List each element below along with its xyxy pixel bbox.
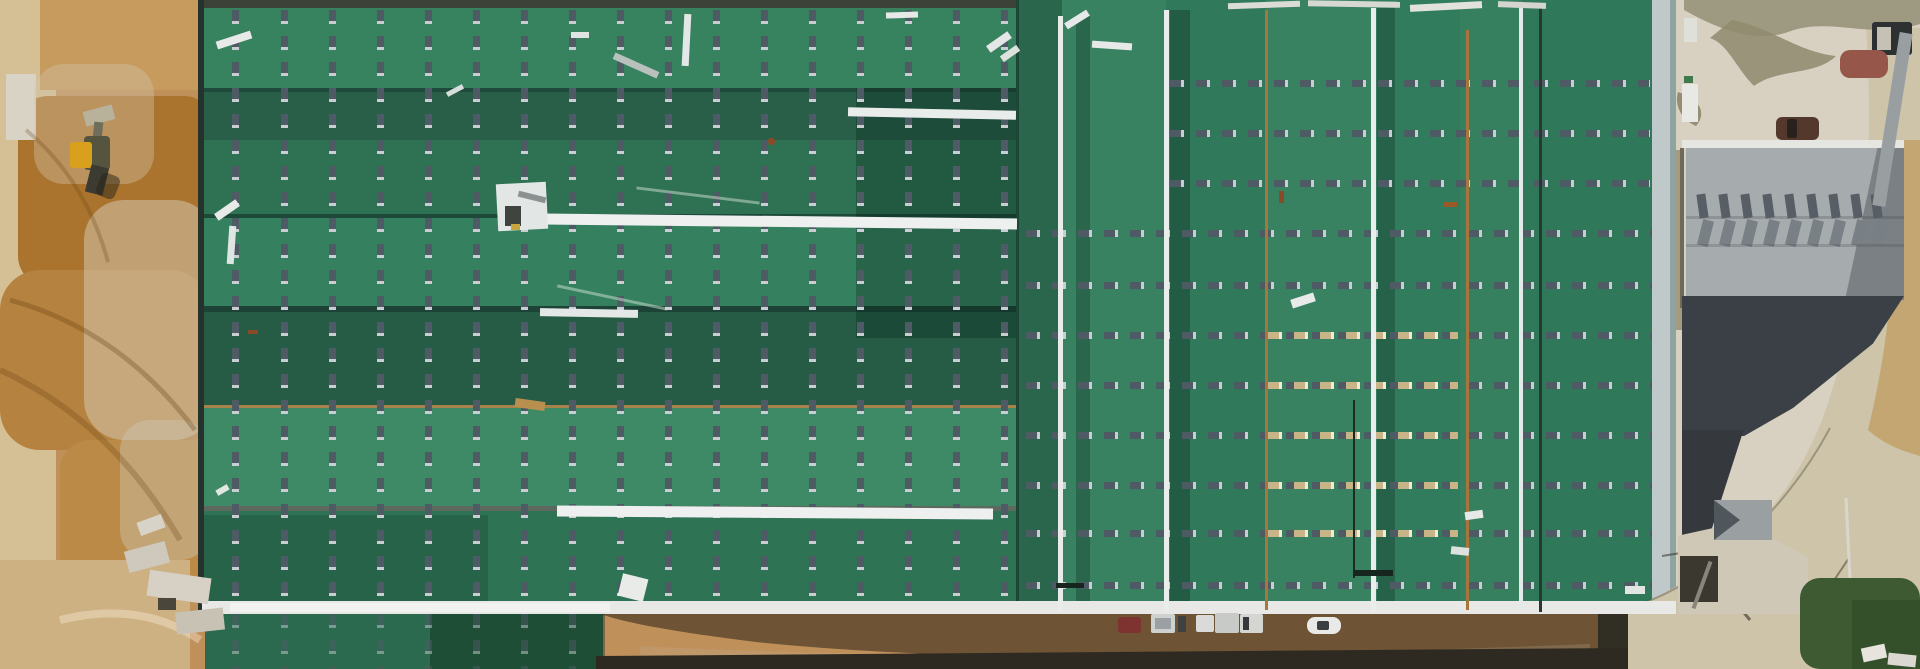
aerial-photo — [0, 0, 1920, 669]
rust-spot-4 — [248, 330, 258, 334]
roof-plank-4 — [571, 32, 589, 38]
roof-bottom-eave-bright — [230, 603, 610, 612]
bush-cluster-sparse — [1630, 606, 1800, 669]
annex-parapet — [1682, 140, 1904, 148]
annex-left-edge — [1680, 148, 1684, 308]
roof-plank-5 — [886, 11, 918, 18]
tire-track-2 — [0, 370, 180, 540]
vent-shadow-note — [1686, 244, 1904, 247]
ridge-rust-1 — [1265, 10, 1268, 610]
red-debris-pile — [1840, 50, 1888, 78]
tire-track-1 — [10, 300, 195, 430]
ridge-rust-2 — [1466, 30, 1469, 610]
dark-mark-2 — [1056, 583, 1084, 588]
parked-dark-gap — [1178, 616, 1186, 632]
parked-brown-car — [1776, 117, 1819, 140]
parked-truck-1-bed — [1155, 618, 1171, 629]
parked-truck-2 — [1196, 615, 1214, 632]
white-sliver-mid — [540, 308, 638, 318]
terrain-and-roads-layer — [0, 0, 1920, 669]
work-gondola-cabin — [505, 206, 521, 226]
excavator-cab — [70, 142, 92, 168]
brown-car-windshield — [1787, 119, 1797, 138]
ridge-dark-1 — [1539, 8, 1542, 612]
utility-box-1 — [1682, 84, 1698, 122]
rust-spot-2 — [1444, 202, 1457, 207]
rust-spot-1 — [768, 138, 775, 145]
rust-spot-3 — [1279, 191, 1284, 203]
ridge-white-1 — [1058, 16, 1063, 612]
ridge-white-3 — [1371, 8, 1376, 612]
work-gondola-platform — [496, 182, 548, 232]
parked-truck-4-windshield — [1243, 617, 1249, 630]
ridge-white-2 — [1164, 10, 1169, 612]
white-car-roof-glass — [1317, 621, 1329, 630]
ridge-dark-2 — [1353, 400, 1355, 578]
utility-box-green — [1684, 76, 1693, 83]
work-gondola-marker — [511, 224, 520, 230]
debris-dark-bit — [158, 598, 176, 610]
ridge-white-4 — [1519, 6, 1523, 612]
parked-truck-3 — [1215, 613, 1239, 633]
parked-red-car — [1118, 617, 1141, 633]
dark-mark-1 — [1353, 570, 1393, 576]
dark-truck-cab — [1877, 27, 1891, 50]
white-tag-4 — [1625, 586, 1645, 594]
utility-box-2 — [1684, 18, 1697, 42]
